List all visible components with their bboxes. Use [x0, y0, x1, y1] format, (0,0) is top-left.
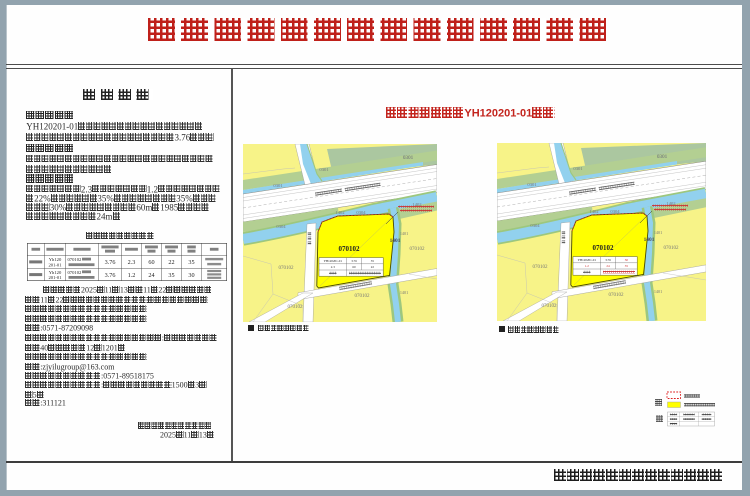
- svg-text:YH120201-01: YH120201-01: [324, 259, 343, 263]
- svg-text:1401: 1401: [644, 237, 655, 243]
- svg-text:070102: 070102: [542, 304, 558, 309]
- svg-text:60: 60: [352, 265, 356, 269]
- svg-text:1401: 1401: [400, 290, 408, 295]
- svg-text:070102: 070102: [593, 244, 615, 252]
- svg-text:070102: 070102: [288, 305, 304, 310]
- svg-text:070102: 070102: [664, 246, 680, 251]
- svg-text:0301: 0301: [657, 154, 668, 160]
- svg-text:0301: 0301: [573, 166, 583, 171]
- svg-text:35: 35: [188, 259, 194, 266]
- svg-text:1.2: 1.2: [585, 264, 589, 268]
- svg-text:35: 35: [371, 259, 375, 263]
- svg-text:0301: 0301: [527, 182, 537, 187]
- svg-text:0301: 0301: [403, 155, 414, 161]
- svg-text:22: 22: [168, 259, 174, 266]
- svg-text:070102: 070102: [67, 257, 81, 262]
- svg-text:070102: 070102: [279, 266, 295, 271]
- svg-text:1401: 1401: [654, 289, 662, 294]
- svg-text:070102: 070102: [67, 269, 81, 274]
- svg-text:1401: 1401: [390, 238, 401, 244]
- svg-text:070102: 070102: [533, 265, 549, 270]
- svg-text:201-01: 201-01: [48, 275, 62, 280]
- svg-text:YH120201-01: YH120201-01: [578, 258, 597, 262]
- svg-text:3.76: 3.76: [104, 271, 115, 278]
- svg-text:1.2: 1.2: [127, 271, 135, 278]
- svg-text:0304: 0304: [610, 209, 620, 214]
- svg-text:0301: 0301: [319, 167, 329, 172]
- svg-text:070102: 070102: [355, 294, 371, 299]
- svg-text:3.76: 3.76: [351, 259, 357, 263]
- svg-text:0304: 0304: [276, 224, 286, 229]
- svg-text:1402: 1402: [335, 210, 345, 215]
- svg-text:35: 35: [625, 264, 629, 268]
- svg-text:24: 24: [606, 264, 610, 268]
- svg-text:0304: 0304: [356, 210, 366, 215]
- svg-text:201-01: 201-01: [48, 262, 62, 267]
- svg-text:1402: 1402: [589, 209, 599, 214]
- svg-text:2.3: 2.3: [331, 265, 335, 269]
- svg-text:1401: 1401: [654, 230, 662, 235]
- svg-text:1402: 1402: [666, 201, 676, 206]
- svg-text:1401: 1401: [400, 231, 408, 236]
- svg-text:30: 30: [625, 258, 629, 262]
- svg-text:070102: 070102: [609, 293, 625, 298]
- svg-text:070102: 070102: [339, 245, 361, 253]
- svg-text:2.3: 2.3: [127, 259, 135, 266]
- svg-text:22: 22: [371, 265, 375, 269]
- svg-text:1402: 1402: [412, 202, 422, 207]
- svg-text:0304: 0304: [530, 223, 540, 228]
- svg-text:070102: 070102: [410, 247, 426, 252]
- svg-text:30: 30: [188, 271, 194, 278]
- svg-text:0301: 0301: [273, 183, 283, 188]
- svg-text:60: 60: [148, 259, 154, 266]
- svg-text:3.76: 3.76: [104, 259, 115, 266]
- svg-text:24: 24: [148, 271, 154, 278]
- svg-text:3.76: 3.76: [605, 258, 611, 262]
- svg-text:35: 35: [168, 271, 174, 278]
